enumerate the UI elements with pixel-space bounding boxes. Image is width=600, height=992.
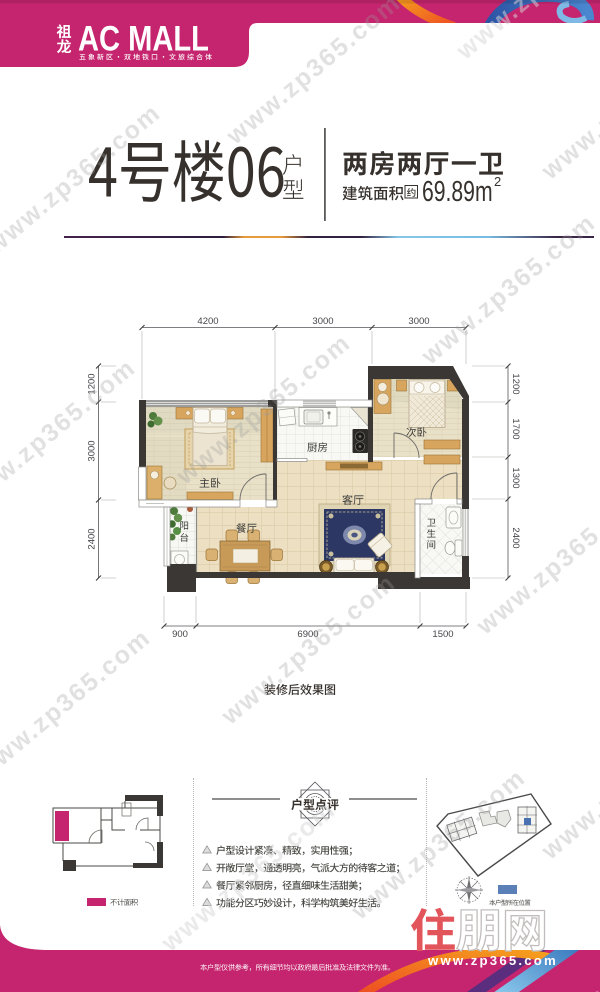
svg-text:AC MALL: AC MALL xyxy=(78,19,209,58)
svg-text:1500: 1500 xyxy=(432,629,453,640)
svg-text:69.89m: 69.89m xyxy=(422,176,493,208)
svg-text:3000: 3000 xyxy=(408,316,429,327)
svg-text:1700: 1700 xyxy=(510,418,521,439)
svg-text:1200: 1200 xyxy=(510,373,521,394)
svg-text:2: 2 xyxy=(494,174,501,189)
svg-text:6900: 6900 xyxy=(297,629,318,640)
svg-text:2400: 2400 xyxy=(87,528,98,549)
svg-text:1300: 1300 xyxy=(510,467,521,488)
svg-text:900: 900 xyxy=(172,629,188,640)
svg-text:2400: 2400 xyxy=(510,527,521,548)
svg-text:1200: 1200 xyxy=(87,373,98,394)
svg-text:3000: 3000 xyxy=(87,440,98,461)
svg-text:3000: 3000 xyxy=(312,316,333,327)
svg-text:4200: 4200 xyxy=(197,316,218,327)
